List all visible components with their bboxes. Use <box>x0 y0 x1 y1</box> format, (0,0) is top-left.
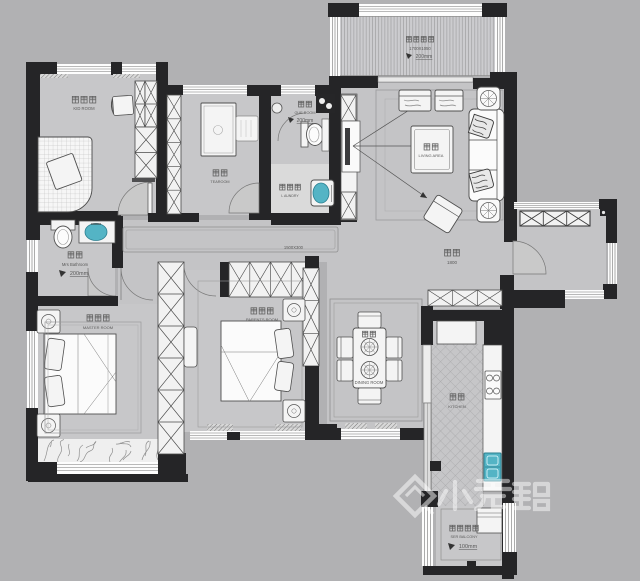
svg-text:200mm: 200mm <box>297 118 314 124</box>
svg-text:1800: 1800 <box>447 260 458 265</box>
svg-text:L AUNDRY: L AUNDRY <box>281 194 299 198</box>
svg-text:SER BALCONY: SER BALCONY <box>450 535 477 539</box>
svg-text:LIVING AREA: LIVING AREA <box>419 153 444 158</box>
svg-text:GUE ROOM: GUE ROOM <box>294 111 315 115</box>
svg-text:MASTER ROOM: MASTER ROOM <box>83 325 113 330</box>
svg-text:100mm: 100mm <box>459 544 478 550</box>
svg-text:200mm: 200mm <box>416 54 433 60</box>
svg-text:KITCHEN: KITCHEN <box>448 404 466 409</box>
svg-text:TEAROOM: TEAROOM <box>210 180 229 184</box>
svg-text:1500X300: 1500X300 <box>284 245 304 250</box>
svg-text:Mrs Bathroom: Mrs Bathroom <box>62 262 89 267</box>
svg-text:KID ROOM: KID ROOM <box>73 106 95 111</box>
svg-text:200mm: 200mm <box>70 271 89 277</box>
svg-text:PARENTS ROOM: PARENTS ROOM <box>246 317 278 322</box>
svg-text:1700X1050: 1700X1050 <box>409 46 431 51</box>
svg-text:DINING ROOM: DINING ROOM <box>355 380 384 385</box>
